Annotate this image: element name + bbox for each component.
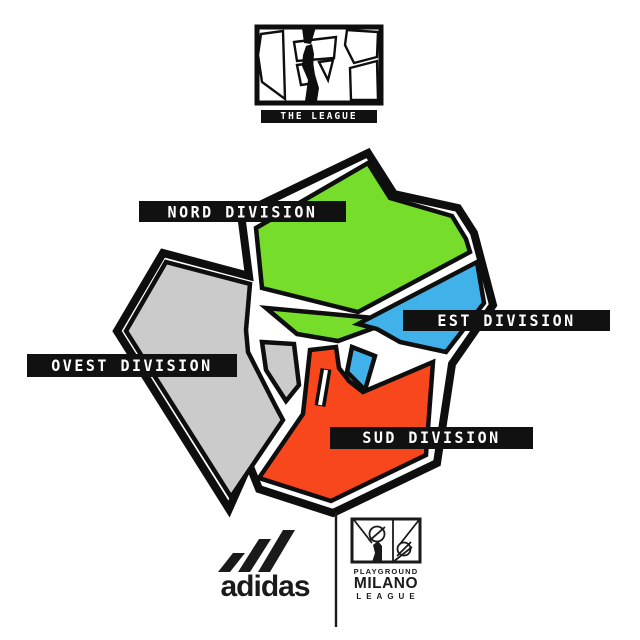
label-ovest-division: OVEST DIVISION — [27, 354, 237, 377]
league-mini-right-bottom — [350, 61, 378, 100]
playground-logo-box — [352, 519, 420, 562]
adidas-wordmark: adidas — [200, 573, 330, 603]
label-est-division: EST DIVISION — [403, 310, 610, 331]
adidas-stripe-3 — [258, 530, 295, 572]
label-ovest-division-text: OVEST DIVISION — [51, 356, 212, 375]
milano-text: MILANO — [346, 575, 426, 593]
poster: THE LEAGUE NORD DIVISION EST DIVISION OV… — [0, 0, 640, 640]
league-text: LEAGUE — [348, 592, 428, 601]
label-sud-division: SUD DIVISION — [330, 427, 533, 449]
label-nord-division-text: NORD DIVISION — [168, 202, 318, 221]
label-sud-division-text: SUD DIVISION — [362, 429, 500, 448]
league-logo-title-bar: THE LEAGUE — [261, 110, 377, 123]
league-logo-title: THE LEAGUE — [280, 111, 357, 123]
label-nord-division: NORD DIVISION — [139, 201, 346, 222]
label-est-division-text: EST DIVISION — [437, 311, 575, 330]
league-mini-center-top — [294, 37, 336, 61]
